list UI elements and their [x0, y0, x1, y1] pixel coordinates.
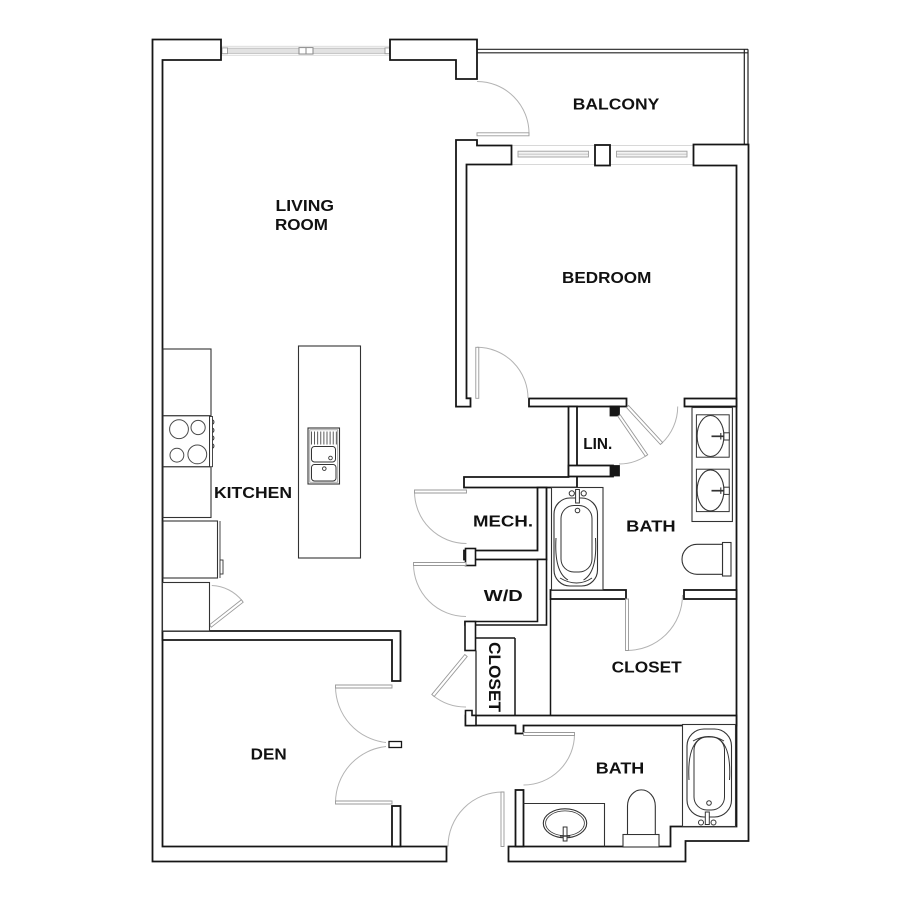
svg-text:ROOM: ROOM	[275, 217, 328, 234]
svg-text:LIN.: LIN.	[583, 436, 612, 453]
svg-text:CLOSET: CLOSET	[485, 642, 504, 713]
svg-text:CLOSET: CLOSET	[612, 660, 682, 677]
svg-text:BEDROOM: BEDROOM	[562, 270, 651, 287]
svg-text:BALCONY: BALCONY	[573, 96, 660, 113]
svg-text:MECH.: MECH.	[473, 514, 533, 531]
svg-text:BATH: BATH	[626, 519, 676, 536]
svg-text:W/D: W/D	[484, 588, 523, 605]
svg-text:LIVING: LIVING	[276, 198, 335, 215]
svg-text:BATH: BATH	[596, 761, 645, 778]
svg-text:KITCHEN: KITCHEN	[214, 485, 292, 502]
svg-text:DEN: DEN	[251, 746, 287, 763]
